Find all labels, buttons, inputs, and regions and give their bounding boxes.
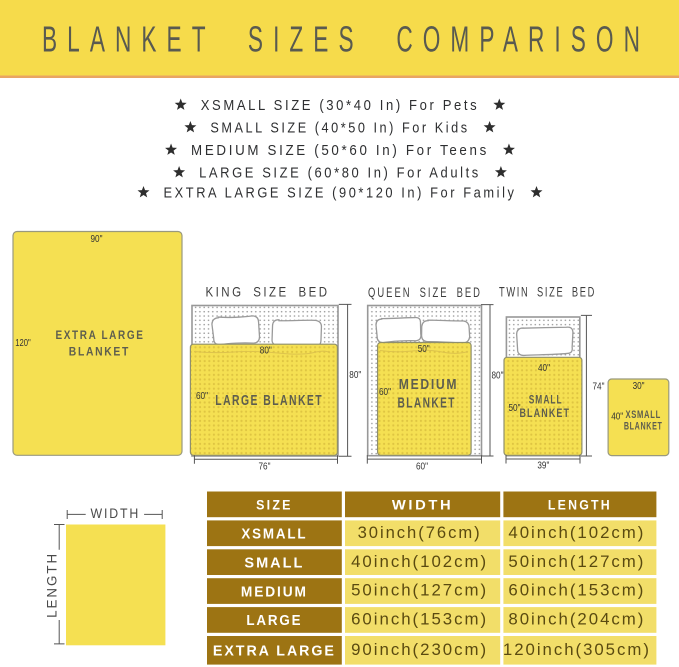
svg-text:40inch(102cm): 40inch(102cm): [351, 552, 488, 571]
svg-text:50": 50": [418, 344, 430, 355]
svg-text:KING SIZE BED: KING SIZE BED: [206, 284, 330, 300]
svg-text:EXTRA LARGE SIZE (90*120 In) F: EXTRA LARGE SIZE (90*120 In) For Family: [164, 185, 517, 202]
svg-text:XSMALL: XSMALL: [241, 526, 307, 542]
svg-text:BLANKET: BLANKET: [69, 345, 130, 359]
svg-text:40": 40": [611, 411, 623, 422]
svg-text:LARGE SIZE (60*80 In) For Adul: LARGE SIZE (60*80 In) For Adults: [199, 165, 481, 182]
svg-text:40": 40": [538, 363, 550, 374]
svg-text:BLANKET: BLANKET: [519, 406, 570, 420]
svg-text:40inch(102cm): 40inch(102cm): [508, 523, 645, 542]
svg-text:WIDTH: WIDTH: [91, 506, 141, 521]
svg-text:WIDTH: WIDTH: [392, 496, 454, 512]
svg-text:60": 60": [196, 391, 208, 402]
svg-text:LARGE: LARGE: [246, 613, 302, 629]
svg-text:60inch(153cm): 60inch(153cm): [508, 581, 645, 600]
svg-text:30": 30": [633, 381, 645, 392]
svg-text:EXTRA LARGE: EXTRA LARGE: [56, 328, 145, 342]
svg-text:XSMALL: XSMALL: [625, 409, 661, 421]
svg-text:XSMALL SIZE (30*40 In) For Pet: XSMALL SIZE (30*40 In) For Pets: [201, 97, 480, 114]
svg-text:MEDIUM: MEDIUM: [241, 584, 308, 600]
svg-text:QUEEN SIZE BED: QUEEN SIZE BED: [368, 284, 482, 300]
svg-text:LENGTH: LENGTH: [44, 552, 59, 618]
svg-text:120inch(305cm): 120inch(305cm): [503, 640, 651, 659]
svg-text:50inch(127cm): 50inch(127cm): [351, 581, 488, 600]
svg-text:76": 76": [259, 462, 271, 473]
svg-text:SMALL SIZE (40*50 In) For Kids: SMALL SIZE (40*50 In) For Kids: [210, 120, 469, 137]
svg-text:SMALL: SMALL: [244, 555, 304, 571]
svg-text:80": 80": [260, 346, 272, 357]
svg-text:60": 60": [416, 462, 428, 473]
svg-text:39": 39": [537, 460, 549, 471]
svg-text:SIZE: SIZE: [256, 496, 293, 512]
svg-text:LARGE BLANKET: LARGE BLANKET: [215, 393, 323, 409]
svg-text:74": 74": [593, 382, 605, 393]
svg-text:MEDIUM SIZE (50*60 In) For Tee: MEDIUM SIZE (50*60 In) For Teens: [191, 142, 489, 159]
svg-text:EXTRA LARGE: EXTRA LARGE: [213, 644, 336, 660]
svg-text:30inch(76cm): 30inch(76cm): [358, 523, 482, 542]
svg-text:MEDIUM: MEDIUM: [399, 377, 458, 393]
svg-text:60": 60": [379, 387, 391, 398]
svg-text:SMALL: SMALL: [529, 392, 563, 406]
svg-text:BLANKET: BLANKET: [624, 421, 663, 433]
svg-text:80": 80": [349, 370, 361, 381]
svg-text:120": 120": [15, 338, 31, 349]
svg-text:90": 90": [91, 234, 103, 245]
svg-text:LENGTH: LENGTH: [548, 496, 612, 512]
svg-text:90inch(230cm): 90inch(230cm): [351, 640, 488, 659]
svg-text:BLANKET SIZES COMPARISON: BLANKET SIZES COMPARISON: [42, 19, 650, 60]
svg-text:80inch(204cm): 80inch(204cm): [508, 610, 645, 629]
svg-text:50inch(127cm): 50inch(127cm): [508, 552, 645, 571]
svg-text:80": 80": [492, 371, 504, 382]
svg-text:BLANKET: BLANKET: [398, 396, 456, 412]
svg-text:60inch(153cm): 60inch(153cm): [351, 610, 488, 629]
svg-text:TWIN SIZE BED: TWIN SIZE BED: [499, 284, 596, 300]
